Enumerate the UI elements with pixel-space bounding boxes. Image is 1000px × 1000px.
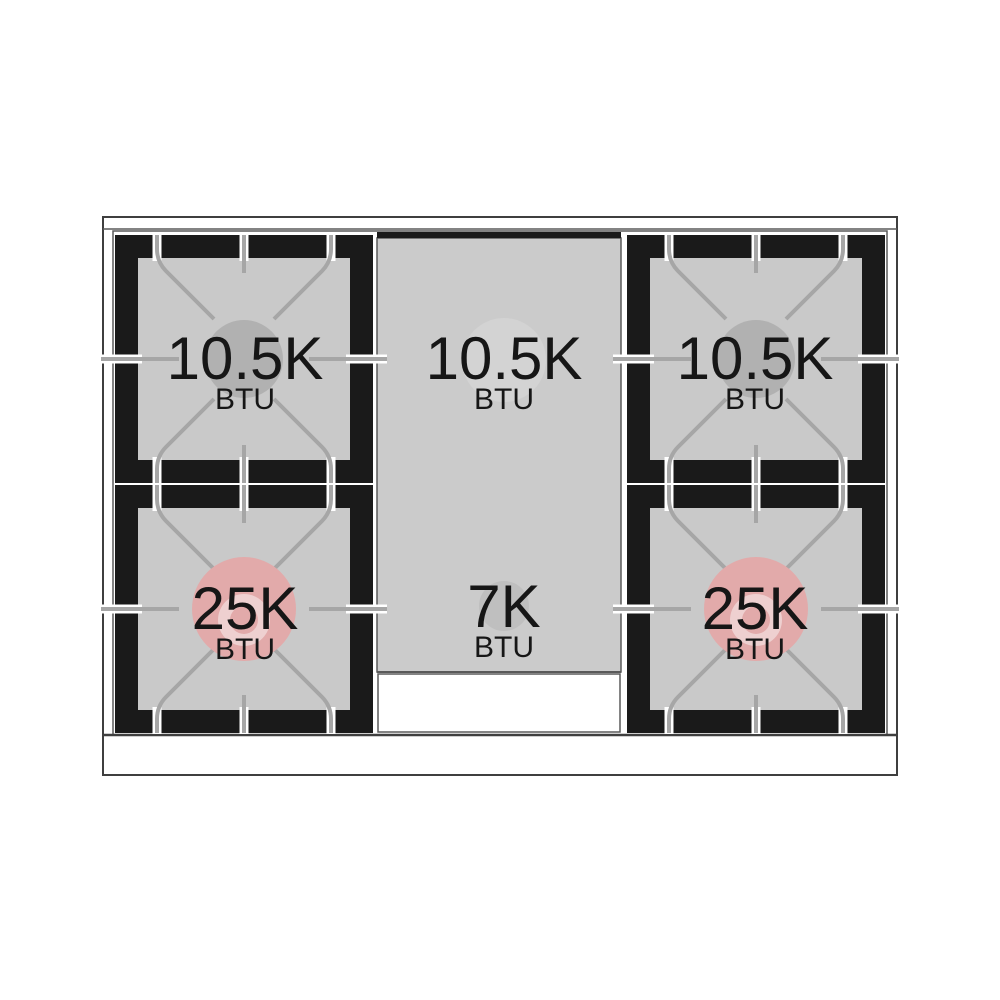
burner-btu-unit: BTU bbox=[725, 383, 785, 416]
burner-btu-unit: BTU bbox=[725, 633, 785, 666]
burner-btu-value: 10.5K bbox=[677, 325, 834, 392]
burner-btu-value: 25K bbox=[702, 575, 809, 642]
cooktop-diagram: 10.5K BTU 10.5K BTU 10.5K BTU 25K BTU 7K bbox=[0, 0, 1000, 1000]
burner-bottom-center: 7K BTU bbox=[467, 573, 540, 664]
burner-btu-value: 7K bbox=[467, 573, 540, 640]
griddle-top-edge bbox=[377, 232, 621, 238]
burner-btu-value: 10.5K bbox=[426, 325, 583, 392]
burner-btu-value: 25K bbox=[192, 575, 299, 642]
cooktop-diagram-svg: 10.5K BTU 10.5K BTU 10.5K BTU 25K BTU 7K bbox=[0, 0, 1000, 1000]
burner-btu-unit: BTU bbox=[474, 383, 534, 416]
burner-btu-unit: BTU bbox=[215, 383, 275, 416]
burner-btu-value: 10.5K bbox=[167, 325, 324, 392]
burner-btu-unit: BTU bbox=[215, 633, 275, 666]
burner-btu-unit: BTU bbox=[474, 631, 534, 664]
griddle-handle bbox=[378, 674, 620, 732]
